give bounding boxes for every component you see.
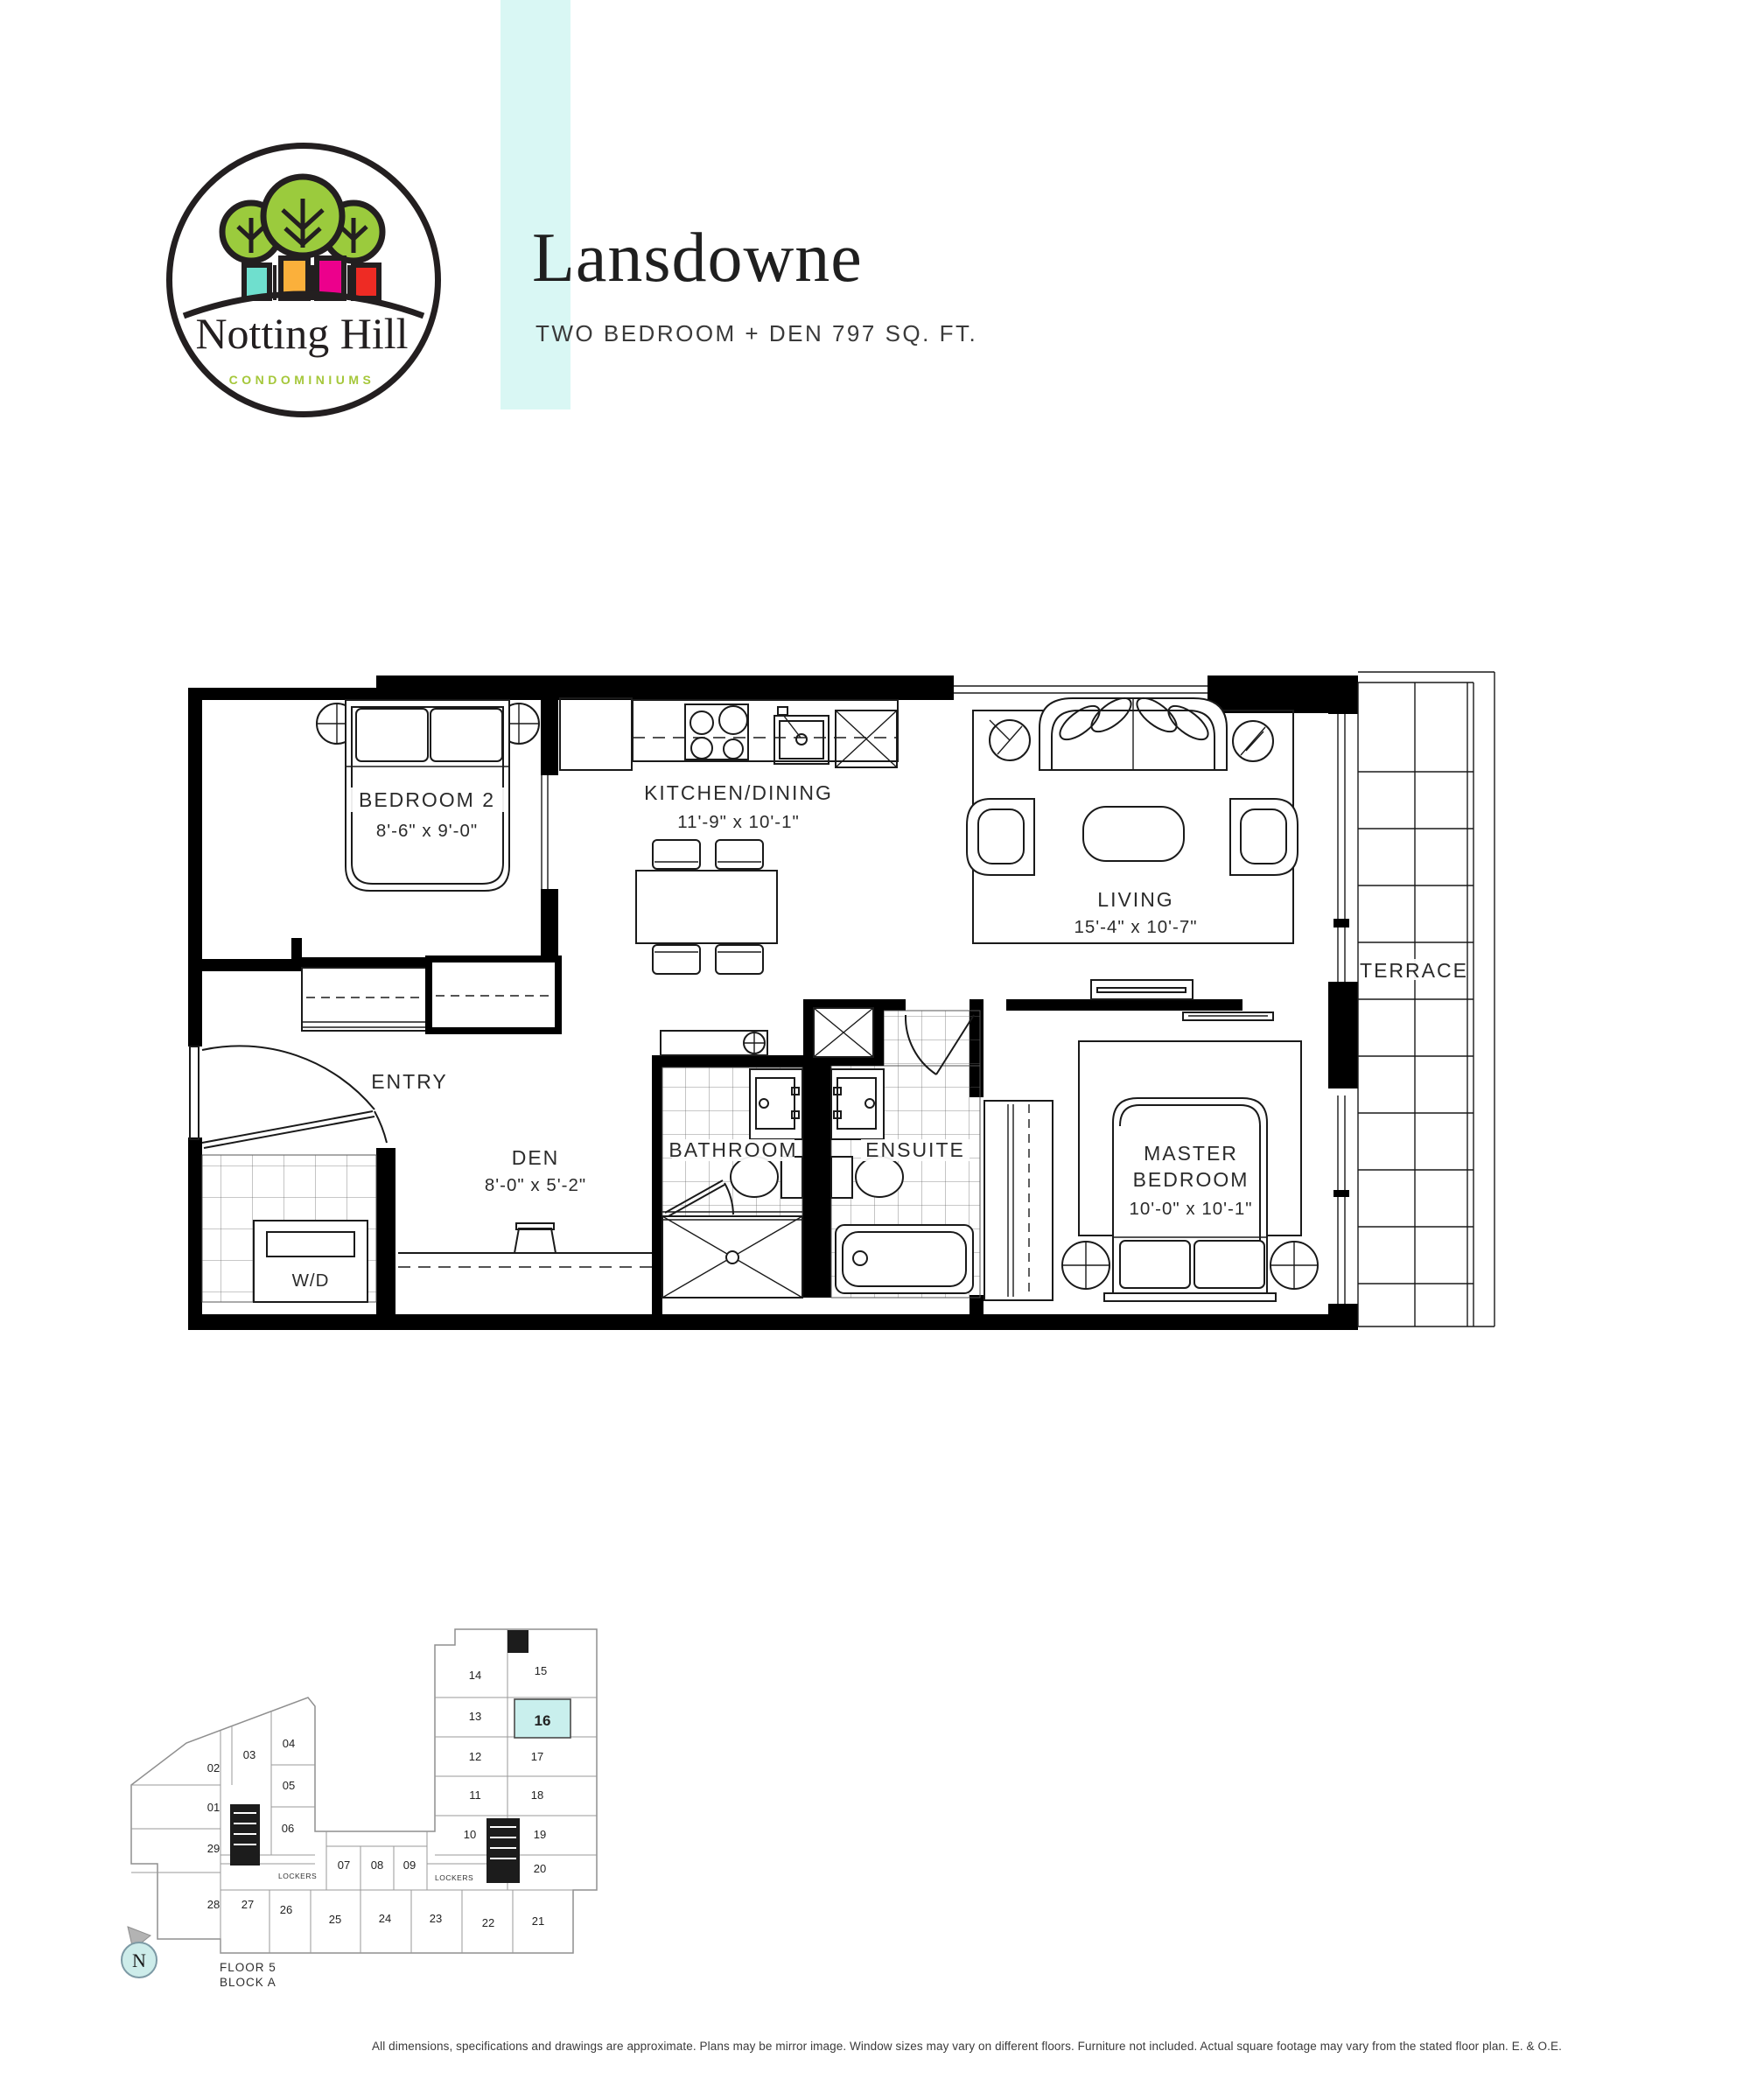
keyplan-unit-29: 29 <box>207 1842 220 1855</box>
terrace-deck <box>1358 672 1494 1326</box>
master-label-1: MASTER <box>1144 1142 1238 1165</box>
north-label: N <box>132 1949 146 1971</box>
floorplan-drawing: BEDROOM 2 8'-6" x 9'-0" KITCHEN/DINING 1… <box>0 0 1750 2100</box>
bathroom-label: BATHROOM <box>668 1138 797 1161</box>
keyplan-unit-14: 14 <box>469 1669 481 1682</box>
keyplan-unit-15: 15 <box>535 1664 547 1677</box>
keyplan-floor-label: FLOOR 5 <box>220 1961 276 1974</box>
entry-door <box>190 1046 387 1148</box>
brochure-page: Notting Hill CONDOMINIUMS Lansdowne TWO … <box>0 0 1750 2100</box>
keyplan-unit-02: 02 <box>207 1761 220 1774</box>
keyplan-unit-24: 24 <box>379 1912 391 1925</box>
keyplan-unit-25: 25 <box>329 1913 341 1926</box>
keyplan-unit-16: 16 <box>535 1712 551 1729</box>
lockers-label-1: LOCKERS <box>278 1872 317 1880</box>
dining-set <box>636 840 777 974</box>
master-dims: 10'-0" x 10'-1" <box>1129 1199 1252 1219</box>
laundry-label: W/D <box>292 1270 330 1291</box>
keyplan-unit-01: 01 <box>207 1801 220 1814</box>
keyplan-block-label: BLOCK A <box>220 1976 276 1989</box>
keyplan-unit-21: 21 <box>532 1914 544 1928</box>
entry-closets <box>302 959 558 1031</box>
keyplan-unit-03: 03 <box>243 1748 255 1761</box>
bedroom2-dims: 8'-6" x 9'-0" <box>376 821 478 841</box>
keyplan-unit-19: 19 <box>534 1828 546 1841</box>
bathroom-fixtures <box>661 1031 802 1298</box>
lockers-label-2: LOCKERS <box>435 1873 473 1882</box>
keyplan-unit-10: 10 <box>464 1828 476 1841</box>
kitchen-fixtures <box>560 698 898 770</box>
keyplan: 0102030405060708091011121314151617181920… <box>122 1629 597 1989</box>
keyplan-unit-11: 11 <box>469 1788 481 1802</box>
bedroom2-sliding-door <box>542 775 548 889</box>
keyplan-unit-23: 23 <box>430 1912 442 1925</box>
living-label: LIVING <box>1097 888 1173 911</box>
keyplan-unit-18: 18 <box>531 1788 543 1802</box>
entry-label: ENTRY <box>371 1070 448 1093</box>
keyplan-unit-07: 07 <box>338 1858 350 1872</box>
den-desk <box>398 1223 652 1267</box>
keyplan-unit-12: 12 <box>469 1750 481 1763</box>
terrace-label: TERRACE <box>1360 959 1468 982</box>
keyplan-unit-28: 28 <box>207 1898 220 1911</box>
master-label-2: BEDROOM <box>1133 1168 1249 1191</box>
keyplan-unit-06: 06 <box>282 1822 294 1835</box>
living-furniture <box>967 692 1298 1020</box>
keyplan-unit-20: 20 <box>534 1862 546 1875</box>
keyplan-unit-22: 22 <box>482 1916 494 1929</box>
laundry-closet <box>202 1155 376 1302</box>
living-dims: 15'-4" x 10'-7" <box>1074 917 1197 937</box>
ensuite-label: ENSUITE <box>865 1138 965 1161</box>
keyplan-unit-04: 04 <box>283 1737 295 1750</box>
keyplan-unit-08: 08 <box>371 1858 383 1872</box>
kitchen-label: KITCHEN/DINING <box>644 781 833 804</box>
keyplan-unit-17: 17 <box>531 1750 543 1763</box>
keyplan-unit-05: 05 <box>283 1779 295 1792</box>
den-dims: 8'-0" x 5'-2" <box>485 1175 586 1195</box>
keyplan-unit-13: 13 <box>469 1710 481 1723</box>
den-label: DEN <box>512 1146 560 1169</box>
keyplan-unit-26: 26 <box>280 1903 292 1916</box>
kitchen-dims: 11'-9" x 10'-1" <box>677 812 800 832</box>
keyplan-unit-27: 27 <box>241 1898 254 1911</box>
keyplan-unit-09: 09 <box>403 1858 416 1872</box>
disclaimer-text: All dimensions, specifications and drawi… <box>372 2040 1711 2053</box>
bedroom2-label: BEDROOM 2 <box>359 788 495 811</box>
